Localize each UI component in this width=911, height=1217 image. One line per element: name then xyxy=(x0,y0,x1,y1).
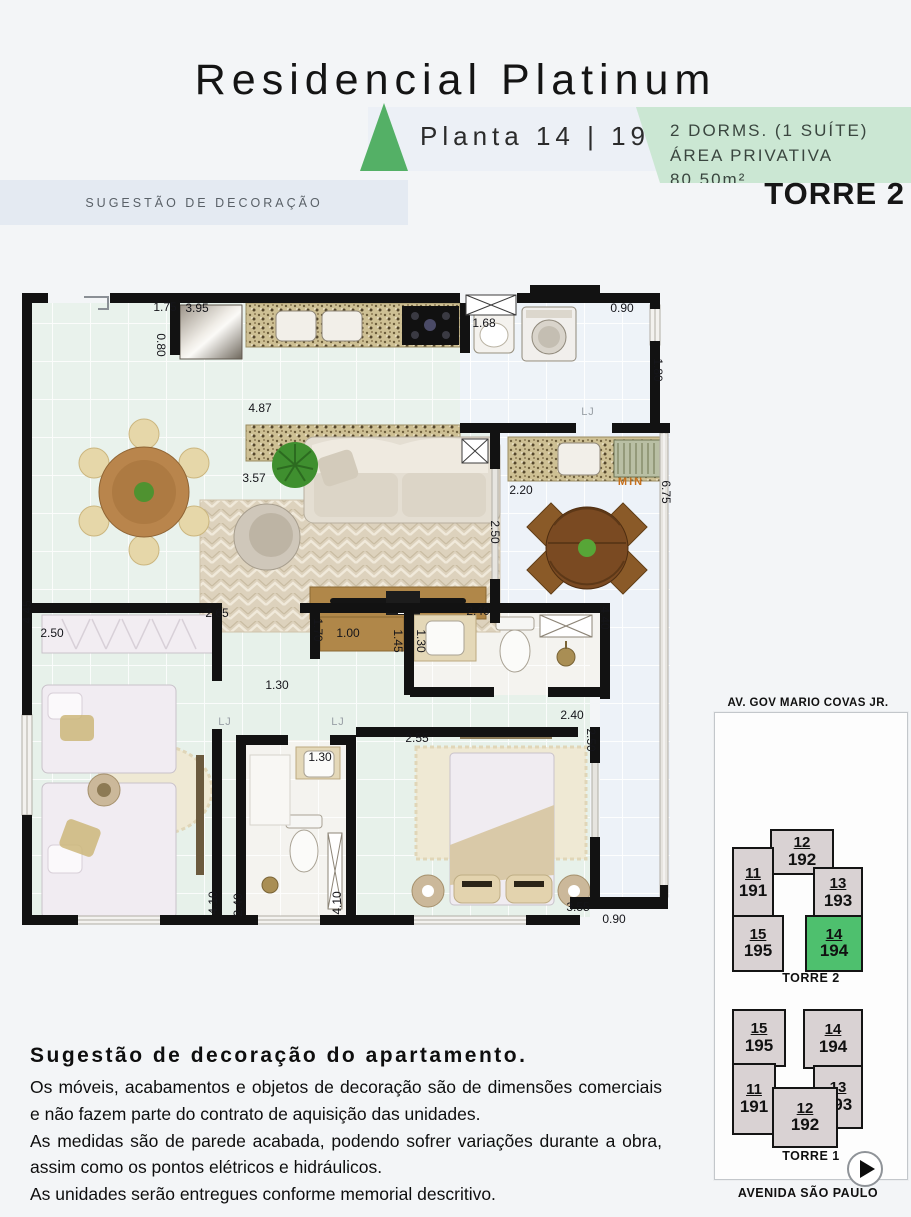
keyplan-t2-unit-15: 15 195 xyxy=(732,915,784,972)
keyplan-t1-unit-14: 14 194 xyxy=(803,1009,863,1069)
green-triangle-icon xyxy=(360,103,408,171)
brochure-page: Residencial Platinum Planta 14 | 194 2 D… xyxy=(0,0,911,1217)
kitchen-sink xyxy=(276,311,316,341)
bath2-sink xyxy=(304,751,334,777)
cooktop xyxy=(402,306,459,345)
unit-info-banner: 2 DORMS. (1 SUÍTE) ÁREA PRIVATIVA 80,50m… xyxy=(622,107,911,183)
keyplan-t1-unit-12: 12 192 xyxy=(772,1087,838,1148)
bed-single-1 xyxy=(42,685,176,773)
disclaimer-heading: Sugestão de decoração do apartamento. xyxy=(30,1044,662,1068)
keyplan-t1-unit-11: 11 191 xyxy=(732,1063,776,1135)
bath2-bench xyxy=(250,755,290,825)
decor-suggestion-bar: SUGESTÃO DE DECORAÇÃO xyxy=(0,180,408,225)
decor-suggestion-label: SUGESTÃO DE DECORAÇÃO xyxy=(85,196,322,210)
keyplan-t2-unit-13: 13 193 xyxy=(813,867,863,919)
street-label-top: AV. GOV MARIO COVAS JR. xyxy=(705,697,911,709)
torre2-caption: TORRE 2 xyxy=(715,971,907,985)
page-title: Residencial Platinum xyxy=(0,56,911,105)
disclaimer-paragraph: Os móveis, acabamentos e objetos de deco… xyxy=(30,1074,662,1128)
north-arrow-icon xyxy=(847,1151,883,1187)
disclaimer-paragraph: As medidas são de parede acabada, podend… xyxy=(30,1128,662,1182)
desk xyxy=(320,617,404,651)
bedroom2-shelf xyxy=(196,755,204,875)
keyplan-panel: 12 192 11 191 13 193 15 195 14 194 TORRE… xyxy=(714,712,908,1180)
floor-plan: 1.753.950.801.680.901.804.873.572.206.75… xyxy=(14,285,690,935)
balcony-sink xyxy=(558,443,600,475)
disclaimer-paragraph: As unidades serão entregues conforme mem… xyxy=(30,1181,662,1208)
armchair xyxy=(234,504,300,570)
washing-machine xyxy=(522,307,576,361)
suite-bed xyxy=(450,753,554,905)
floor-plan-drawing xyxy=(14,285,690,935)
tower-label: TORRE 2 xyxy=(575,176,905,212)
keyplan-t2-unit-11: 11 191 xyxy=(732,847,774,919)
mini-grill xyxy=(614,440,660,477)
banner-dorms: 2 DORMS. (1 SUÍTE) xyxy=(670,119,911,144)
fridge xyxy=(180,305,242,359)
keyplan-t2-unit-14-highlighted: 14 194 xyxy=(805,915,863,972)
bath1-sink xyxy=(426,621,464,655)
plan-number-label: Planta 14 | 194 xyxy=(420,121,669,152)
disclaimer-block: Sugestão de decoração do apartamento. Os… xyxy=(30,1044,662,1208)
keyplan-t1-unit-15: 15 195 xyxy=(732,1009,786,1067)
street-label-bottom: AVENIDA SÃO PAULO xyxy=(705,1186,911,1200)
